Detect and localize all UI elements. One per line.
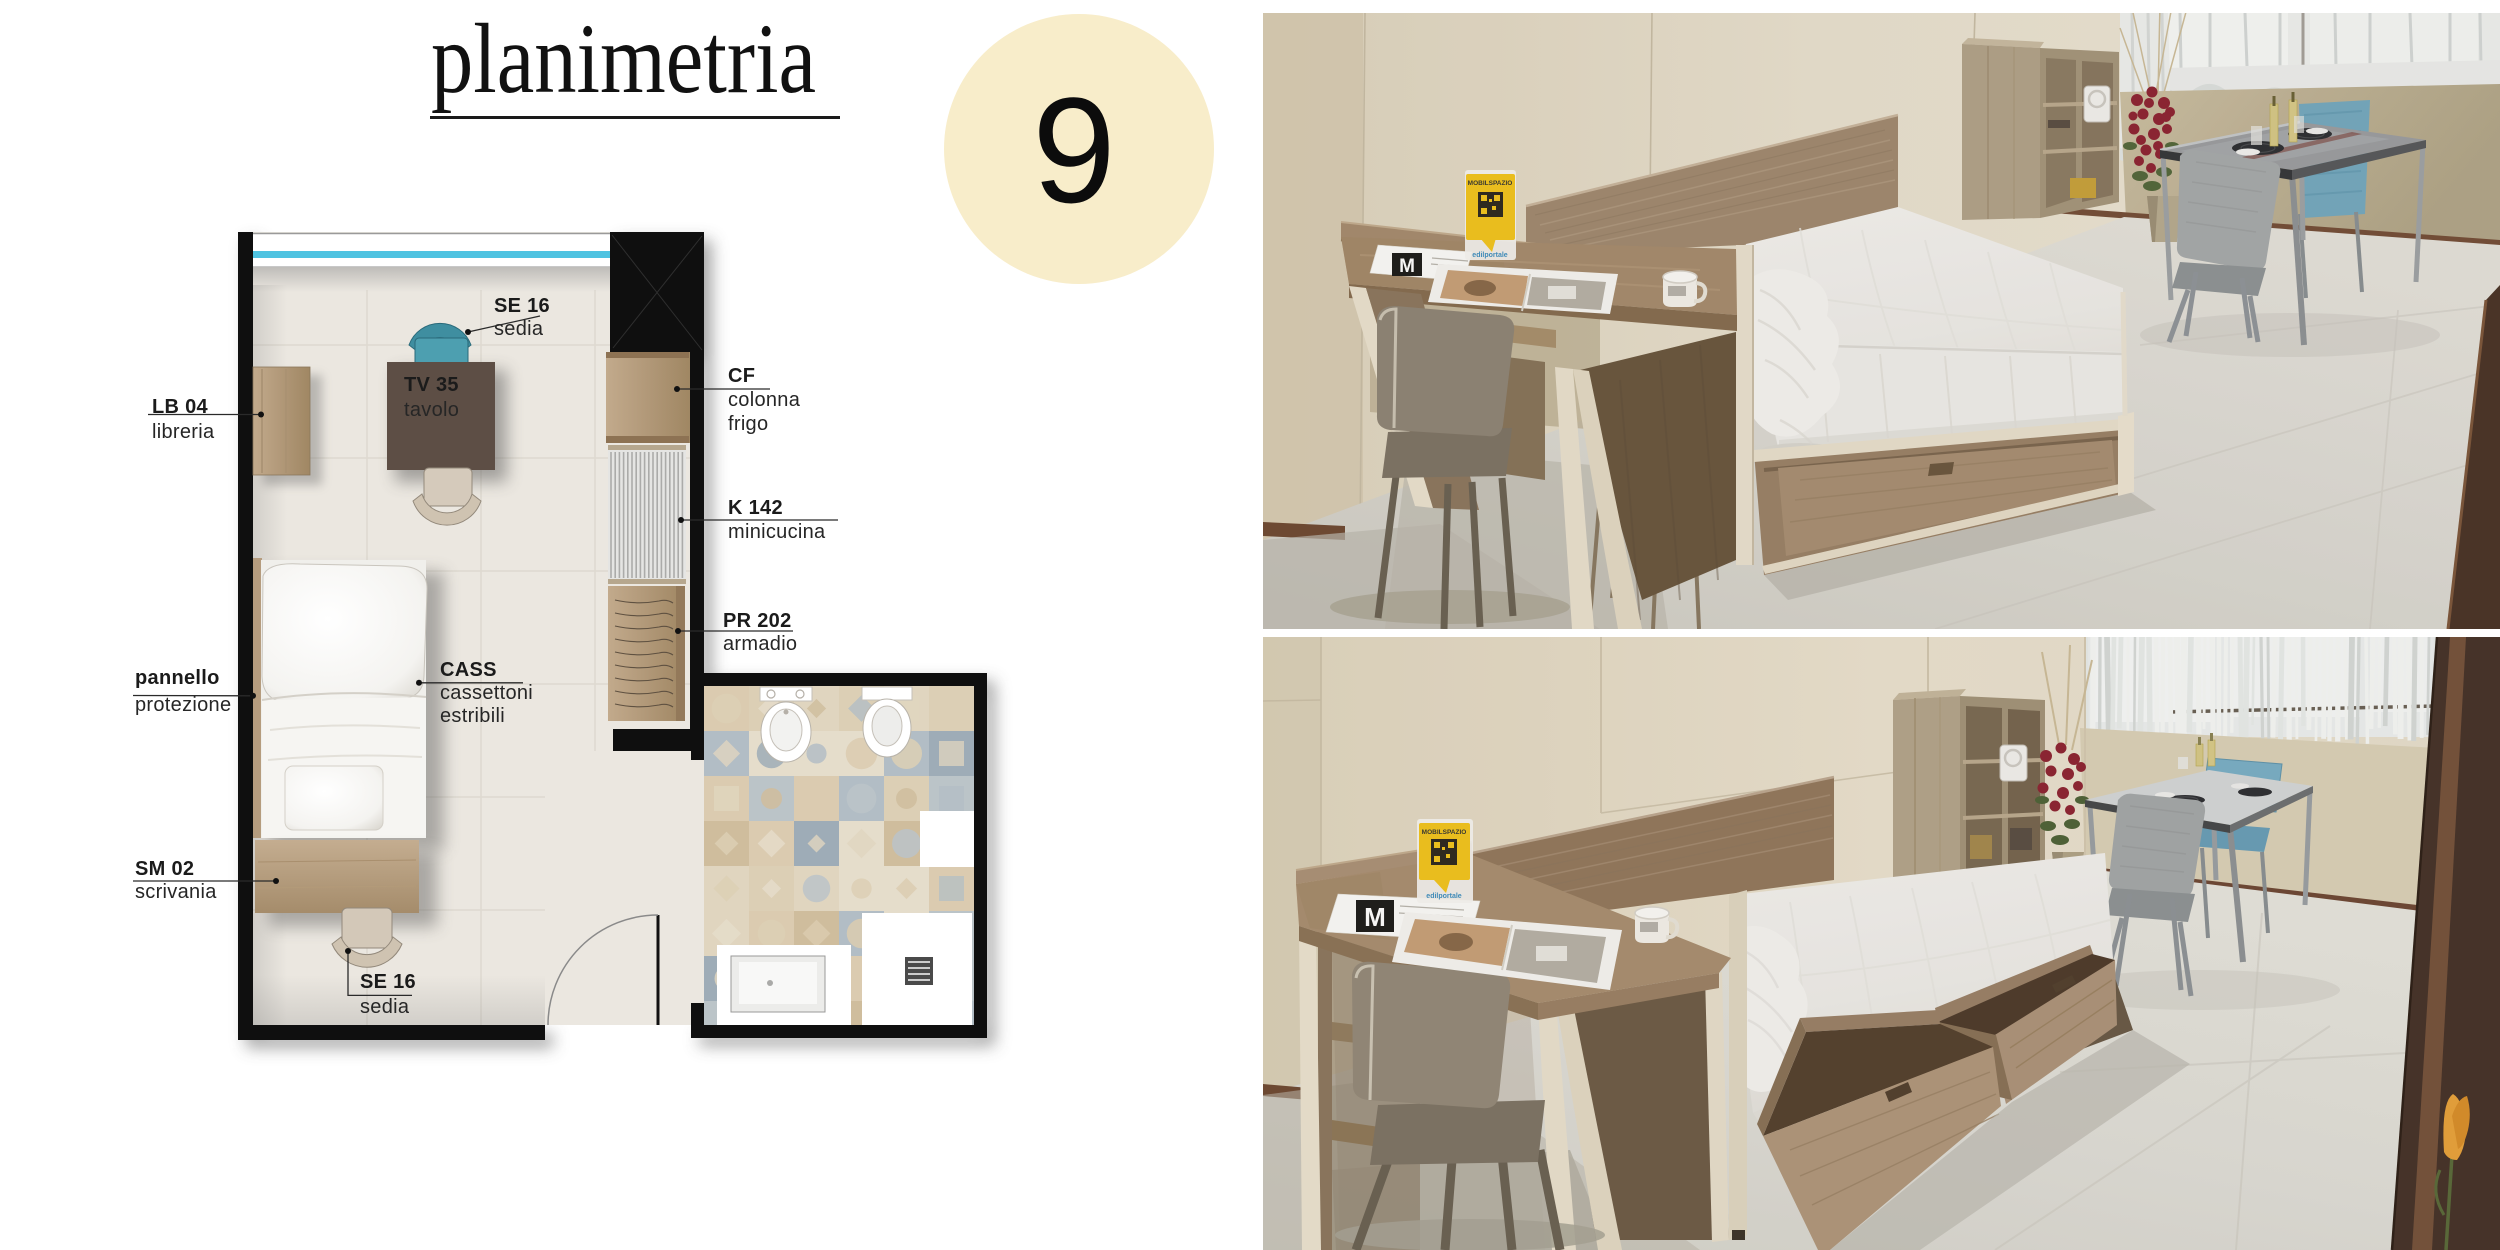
svg-text:cassettoni: cassettoni <box>440 682 533 704</box>
svg-text:tavolo: tavolo <box>404 399 459 421</box>
svg-text:9: 9 <box>1032 66 1115 234</box>
svg-text:SE 16: SE 16 <box>494 295 550 317</box>
svg-text:libreria: libreria <box>152 421 215 443</box>
svg-text:armadio: armadio <box>723 633 797 655</box>
svg-text:estribili: estribili <box>440 705 505 727</box>
svg-text:CASS: CASS <box>440 659 497 681</box>
svg-text:protezione: protezione <box>135 694 231 716</box>
svg-text:K 142: K 142 <box>728 497 783 519</box>
svg-text:sedia: sedia <box>360 996 410 1018</box>
svg-text:CF: CF <box>728 365 755 387</box>
svg-text:colonna: colonna <box>728 389 801 411</box>
svg-text:SM 02: SM 02 <box>135 858 194 880</box>
svg-text:SE 16: SE 16 <box>360 971 416 993</box>
svg-text:frigo: frigo <box>728 413 768 435</box>
svg-text:pannello: pannello <box>135 667 220 689</box>
svg-text:TV 35: TV 35 <box>404 374 459 396</box>
svg-text:planimetria: planimetria <box>431 3 816 114</box>
svg-text:scrivania: scrivania <box>135 881 217 903</box>
svg-text:minicucina: minicucina <box>728 521 826 543</box>
svg-text:PR 202: PR 202 <box>723 610 792 632</box>
